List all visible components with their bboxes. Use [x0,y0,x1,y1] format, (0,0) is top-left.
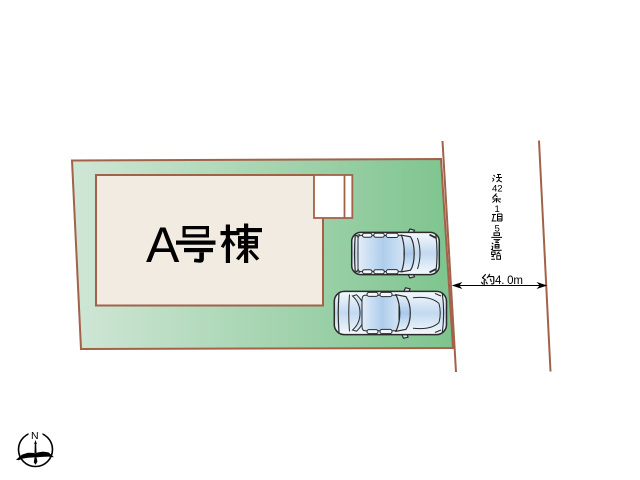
svg-text:1: 1 [495,204,500,215]
svg-text:42: 42 [492,184,503,195]
svg-text:4. 0m: 4. 0m [495,275,523,287]
svg-text:A: A [146,217,180,273]
svg-text:N: N [31,430,39,442]
